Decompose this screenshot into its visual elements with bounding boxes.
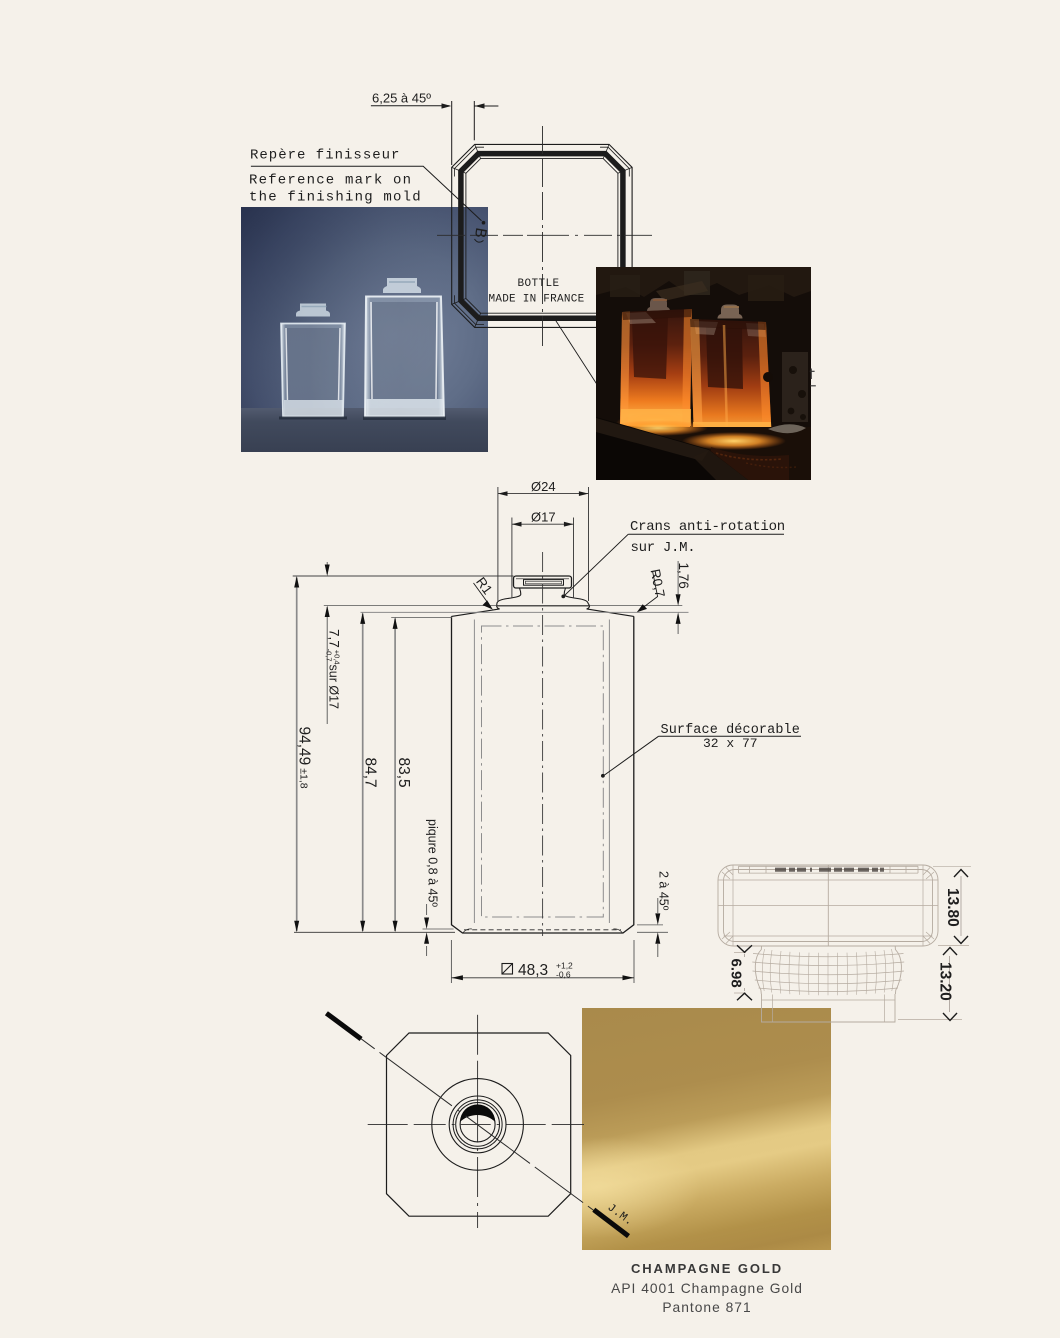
svg-text:J.M.: J.M. (605, 1201, 636, 1229)
